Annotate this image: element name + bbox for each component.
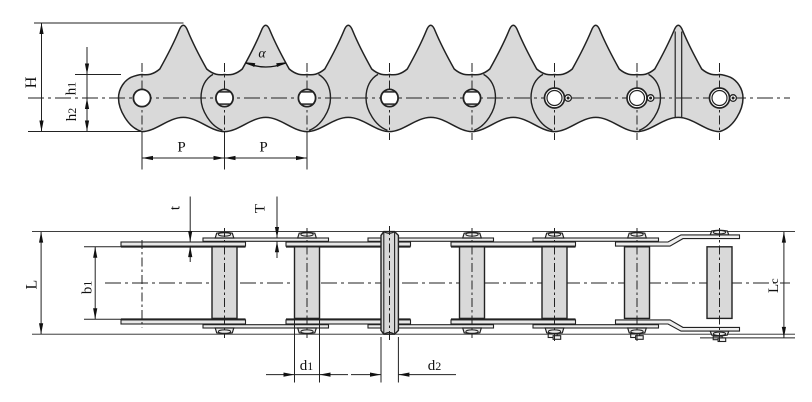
svg-text:P: P xyxy=(259,140,267,156)
svg-text:α: α xyxy=(258,47,266,62)
svg-text:b1: b1 xyxy=(80,281,96,295)
svg-text:P: P xyxy=(177,140,185,156)
svg-text:d2: d2 xyxy=(428,358,442,374)
svg-text:T: T xyxy=(253,204,269,213)
svg-text:H: H xyxy=(23,76,40,88)
svg-text:h2: h2 xyxy=(64,108,80,122)
svg-text:h1: h1 xyxy=(64,82,80,96)
svg-text:d1: d1 xyxy=(300,358,314,374)
svg-text:L: L xyxy=(23,280,40,290)
svg-text:Lc: Lc xyxy=(766,278,782,293)
